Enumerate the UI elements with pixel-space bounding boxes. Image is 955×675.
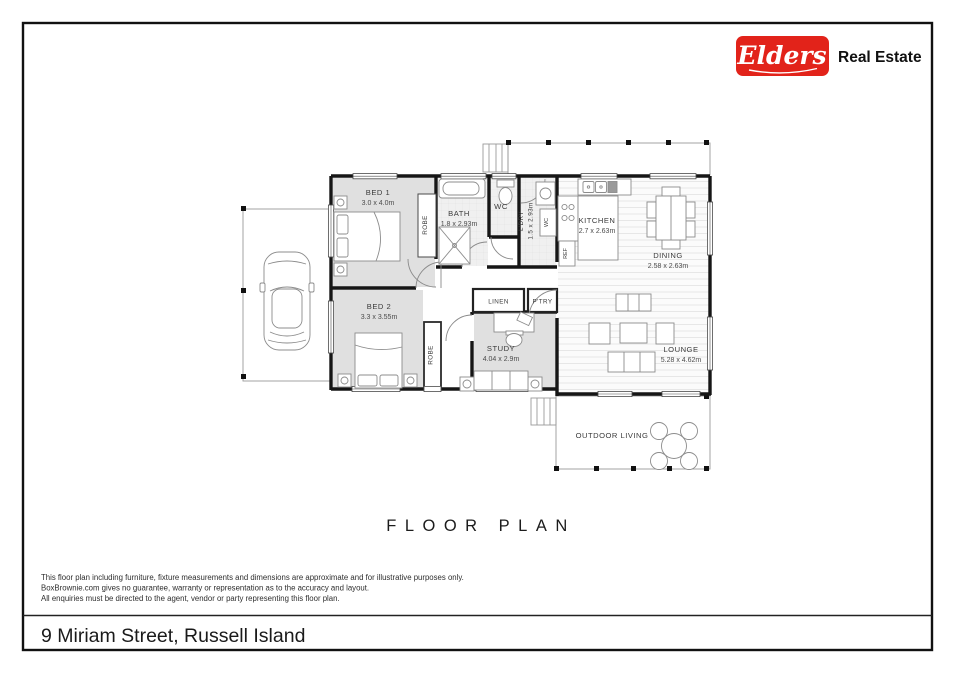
deck-post — [594, 466, 599, 471]
room-label-bed1: BED 1 — [366, 188, 390, 197]
room-dims-dining: 2.58 x 2.63m — [648, 263, 689, 270]
elders-logo-text: Elders — [736, 41, 826, 70]
elders-logo: Elders Real Estate — [736, 36, 922, 76]
bed1-bed — [334, 212, 400, 261]
deck-post — [667, 466, 672, 471]
room-dims-lounge: 5.28 x 4.62m — [661, 357, 702, 364]
label-fridge: REF — [563, 247, 569, 258]
armchair — [589, 323, 610, 344]
coffee-table — [620, 323, 647, 343]
verandah-post — [586, 140, 591, 145]
laundry-tub — [536, 182, 555, 205]
carport-post — [241, 374, 246, 379]
lounge-sofa — [608, 352, 655, 372]
floor-plan-canvas: Elders Real Estate — [0, 0, 955, 675]
room-dims-kitchen: 2.7 x 2.63m — [579, 228, 616, 235]
room-label-wc: WC — [494, 202, 508, 211]
brand-tagline: Real Estate — [838, 49, 922, 66]
study-sofa — [474, 371, 528, 390]
disclaimer: This floor plan including furniture, fix… — [41, 573, 464, 603]
verandah-deck — [508, 143, 710, 175]
room-label-dining: DINING — [653, 251, 683, 260]
disclaimer-line3: All enquiries must be directed to the ag… — [41, 594, 340, 603]
room-label-study: STUDY — [487, 344, 515, 353]
room-label-outdoor: OUTDOOR LIVING — [576, 431, 649, 440]
room-label-kitchen: KITCHEN — [579, 216, 616, 225]
verandah-post — [666, 140, 671, 145]
room-label-bed2: BED 2 — [367, 302, 391, 311]
room-label-lounge: LOUNGE — [663, 345, 698, 354]
verandah-post — [546, 140, 551, 145]
page-title: FLOOR PLAN — [386, 517, 576, 535]
room-label-robe2: ROBE — [428, 345, 435, 364]
room-dims-bed1: 3.0 x 4.0m — [362, 200, 395, 207]
deck-post — [631, 466, 636, 471]
verandah-steps — [483, 144, 508, 172]
floor-plan-page: Elders Real Estate — [0, 0, 955, 675]
tv-unit — [616, 294, 651, 311]
front-verandah — [483, 140, 710, 175]
armchair — [656, 323, 674, 344]
property-address: 9 Miriam Street, Russell Island — [41, 625, 305, 647]
room-label-pantry: P'TRY — [533, 299, 553, 306]
label-washer: WC — [544, 218, 550, 227]
carport-post — [241, 288, 246, 293]
car-icon — [260, 252, 314, 350]
room-dims-bed2: 3.3 x 3.55m — [361, 314, 398, 321]
disclaimer-line1: This floor plan including furniture, fix… — [41, 573, 464, 582]
carport-post — [241, 206, 246, 211]
verandah-post — [506, 140, 511, 145]
outdoor-living-area: OUTDOOR LIVING — [531, 394, 710, 471]
room-dims-study: 4.04 x 2.9m — [483, 356, 520, 363]
room-label-linen: LINEN — [488, 299, 509, 306]
room-dims-ldry: 1.5 x 2.93m — [528, 202, 535, 239]
carport — [241, 206, 331, 381]
room-dims-bath: 1.8 x 2.93m — [441, 221, 478, 228]
disclaimer-line2: BoxBrownie.com gives no guarantee, warra… — [41, 584, 369, 593]
room-label-ldry: L'DRY — [518, 211, 525, 231]
outdoor-table-setting — [651, 423, 698, 470]
room-label-robe1: ROBE — [422, 215, 429, 234]
toilet — [497, 180, 514, 187]
verandah-post — [704, 140, 709, 145]
deck-post — [554, 466, 559, 471]
bed2-bed — [355, 333, 402, 388]
room-label-bath: BATH — [448, 209, 470, 218]
deck-post — [704, 466, 709, 471]
verandah-post — [626, 140, 631, 145]
outdoor-steps — [531, 398, 556, 425]
